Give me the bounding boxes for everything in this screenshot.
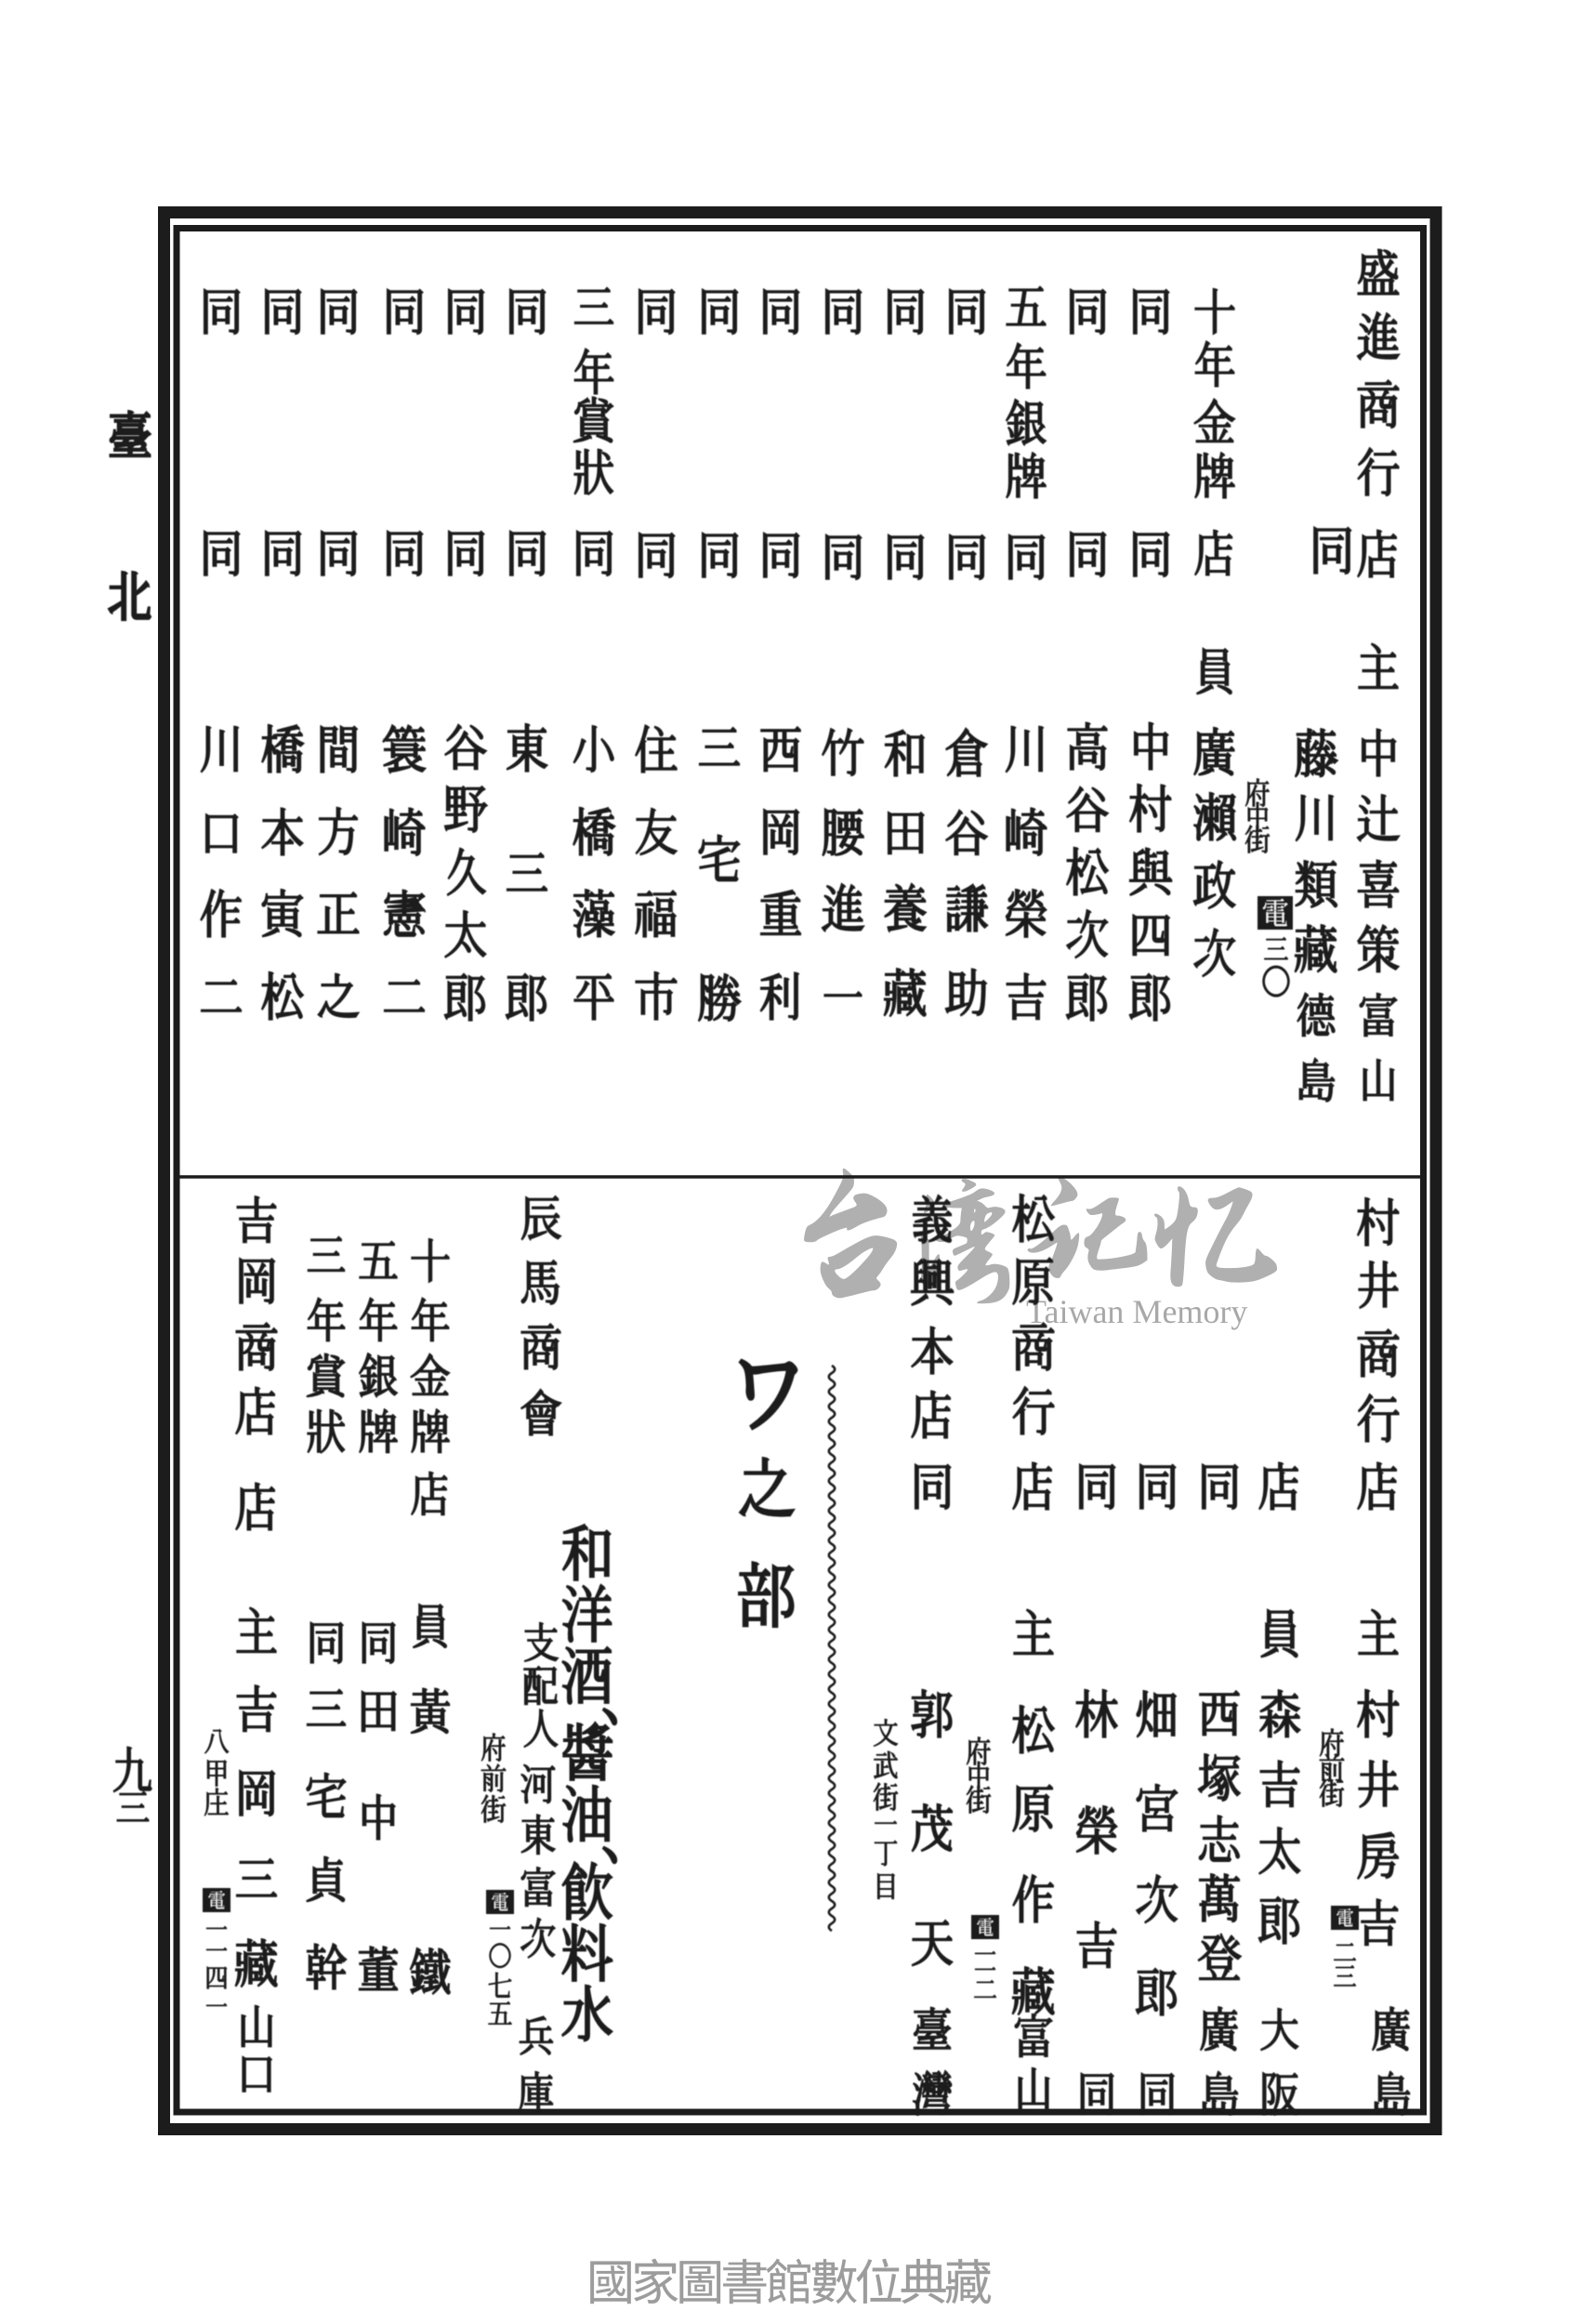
svg-text:Taiwan Memory: Taiwan Memory bbox=[1026, 1293, 1247, 1330]
